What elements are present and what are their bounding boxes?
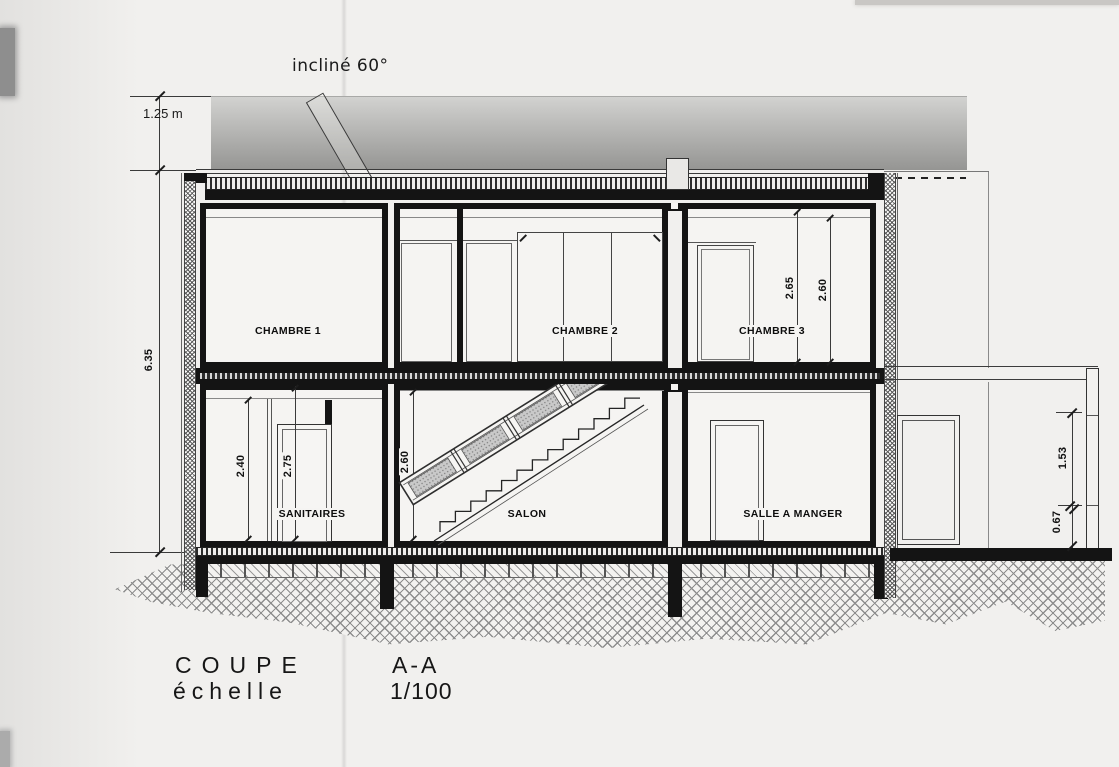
dim-line-chambre3-b: [830, 217, 831, 363]
dim-line-sanitaires-a: [248, 399, 249, 540]
ground-slab-screed: [196, 547, 884, 556]
wall-right-insulation: [884, 173, 896, 598]
drawing-title: COUPE: [175, 652, 307, 679]
roof-line-outer: [196, 169, 884, 170]
dim-line-chambre3-a: [797, 211, 798, 363]
dim-line-left: [159, 96, 160, 552]
label-salle-a-manger: SALLE A MANGER: [740, 508, 845, 520]
annex-column-joint: [1087, 505, 1098, 506]
staircase: [394, 384, 668, 547]
door-lintel: [325, 400, 332, 424]
annex-roof-slab: [884, 366, 1098, 380]
dim-annex-a: 1.53: [1057, 445, 1069, 472]
flue-notch-upper: [671, 203, 678, 209]
wall-edge-line: [271, 399, 272, 541]
ceiling-line-chambre3: [688, 217, 870, 218]
background-edge-lower: [988, 382, 989, 548]
dim-chambre3-a: 2.65: [784, 275, 796, 302]
scan-streak-top: [855, 0, 1119, 5]
label-chambre-3: CHAMBRE 3: [736, 325, 808, 337]
scan-mark-bottom-left: [0, 731, 10, 767]
label-chambre-2: CHAMBRE 2: [549, 325, 621, 337]
drawing-scale-label: échelle: [173, 678, 288, 705]
label-sanitaires: SANITAIRES: [276, 508, 349, 520]
chimney: [666, 158, 689, 190]
annex-column-joint: [1087, 415, 1098, 416]
ceiling-line-sanitaires: [206, 398, 382, 399]
incline-annotation: incliné 60°: [292, 56, 389, 76]
flue-notch-lower: [671, 384, 678, 390]
dim-chambre3-b: 2.60: [817, 277, 829, 304]
roof-offset-dimension: 1.25 m: [143, 106, 183, 121]
dim-extension-eaves: [130, 170, 196, 171]
ceiling-line-salle: [688, 392, 870, 393]
annex-window-inner: [902, 420, 955, 540]
stair-railing: [400, 384, 626, 505]
paper-edge-shading: [0, 0, 140, 767]
dim-leader: [1056, 412, 1082, 413]
wardrobe-divider: [563, 233, 564, 361]
wardrobe-panel-mid: [466, 243, 512, 362]
ground-brick-band: [196, 563, 884, 578]
annex-ground-slab: [890, 548, 1112, 561]
ceiling-line-chambre2: [400, 217, 662, 218]
closet-top-line: [688, 242, 756, 243]
roof-line-right-extension: [884, 171, 989, 172]
wardrobe-unit: [517, 232, 663, 362]
roof-dashed-line: [895, 177, 966, 179]
wall-left-outer-line: [181, 173, 182, 592]
dim-extension-top: [130, 96, 211, 97]
room-chambre-1: [200, 203, 388, 368]
section-drawing-sheet: incliné 60° 1.25 m 6.35: [0, 0, 1119, 767]
drawing-scale-value: 1/100: [390, 678, 453, 705]
stair-stringer-inner: [438, 409, 648, 545]
scan-mark-top-left: [0, 28, 15, 96]
background-edge-upper: [988, 172, 989, 368]
wall-left-insulation: [184, 181, 196, 590]
roof-slab: [205, 190, 884, 200]
total-height-dimension: 6.35: [143, 347, 155, 374]
wardrobe-partition: [457, 209, 463, 362]
wardrobe-panel-left: [401, 243, 452, 362]
roof-insulation-band: [205, 177, 882, 190]
door-salle-inner: [715, 425, 759, 541]
dim-sanitaires-a: 2.40: [235, 453, 247, 480]
dim-sanitaires-b: 2.75: [282, 453, 294, 480]
dim-annex-b: 0.67: [1051, 509, 1063, 536]
annex-column: [1086, 368, 1099, 558]
label-salon: SALON: [505, 508, 550, 520]
label-chambre-1: CHAMBRE 1: [252, 325, 324, 337]
door-sanitaires-inner: [282, 429, 327, 542]
roof-cap-right: [868, 173, 884, 200]
roof-line-inner: [196, 173, 884, 174]
mid-floor-slab-core: [200, 373, 880, 379]
ground-slab: [196, 556, 884, 564]
ceiling-line-chambre1: [206, 217, 382, 218]
closet-chambre3-inner: [701, 249, 750, 360]
dim-extension-floor: [110, 552, 192, 553]
dim-line-annex: [1072, 412, 1073, 548]
drawing-section-id: A-A: [392, 652, 439, 679]
wardrobe-divider: [611, 233, 612, 361]
wall-edge-line: [267, 399, 268, 541]
